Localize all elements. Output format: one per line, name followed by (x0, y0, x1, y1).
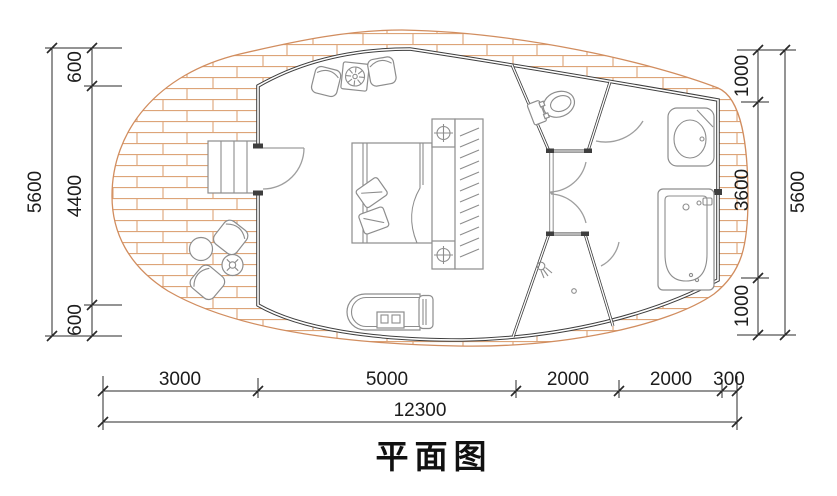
floor-plan-page: 600 4400 600 5600 1000 3600 1000 5600 30… (0, 0, 837, 496)
dim-label: 4400 (65, 175, 86, 217)
drawing-title: 平面图 (376, 438, 493, 475)
wall-marker (714, 189, 722, 195)
chaise-lounge (347, 294, 433, 330)
dim-bottom: 3000 5000 2000 2000 300 12300 (98, 369, 745, 430)
dim-label: 5600 (25, 171, 46, 213)
door-jamb (546, 232, 554, 237)
door-leaf (550, 152, 554, 192)
door-leaf (550, 193, 554, 233)
stairs-body (208, 141, 257, 193)
toilet-hinge (539, 101, 545, 107)
toilet-hinge (543, 113, 549, 119)
dim-label: 2000 (547, 369, 589, 390)
double-bed (352, 143, 432, 243)
dim-label: 5600 (788, 171, 809, 213)
armchair (310, 65, 342, 97)
dim-label: 3000 (159, 369, 201, 390)
dim-label: 1000 (732, 55, 753, 97)
dim-left: 600 4400 600 5600 (25, 43, 122, 341)
door-jamb (253, 144, 263, 149)
bathtub (658, 189, 714, 290)
side-table (341, 62, 370, 92)
dim-label: 12300 (394, 400, 447, 421)
stairs (208, 141, 257, 193)
door-jamb (581, 232, 589, 237)
outdoor-round-table (190, 238, 213, 261)
dim-right: 1000 3600 1000 5600 (732, 45, 809, 340)
door-jamb (253, 191, 263, 196)
dim-label: 5000 (366, 369, 408, 390)
dim-label: 300 (713, 369, 745, 390)
vanity-counter (668, 108, 714, 166)
dim-label: 1000 (732, 285, 753, 327)
dim-label: 600 (65, 51, 86, 83)
dim-label: 600 (65, 304, 86, 336)
door-jamb (546, 149, 554, 154)
door-opening (253, 148, 264, 191)
washbasin (668, 108, 714, 166)
dim-label: 3600 (732, 169, 753, 211)
floor-plan-canvas: 600 4400 600 5600 1000 3600 1000 5600 30… (0, 0, 837, 496)
plant-stand (222, 255, 243, 276)
dim-label: 2000 (650, 369, 692, 390)
door-jamb (584, 149, 592, 154)
armchair (367, 56, 397, 87)
